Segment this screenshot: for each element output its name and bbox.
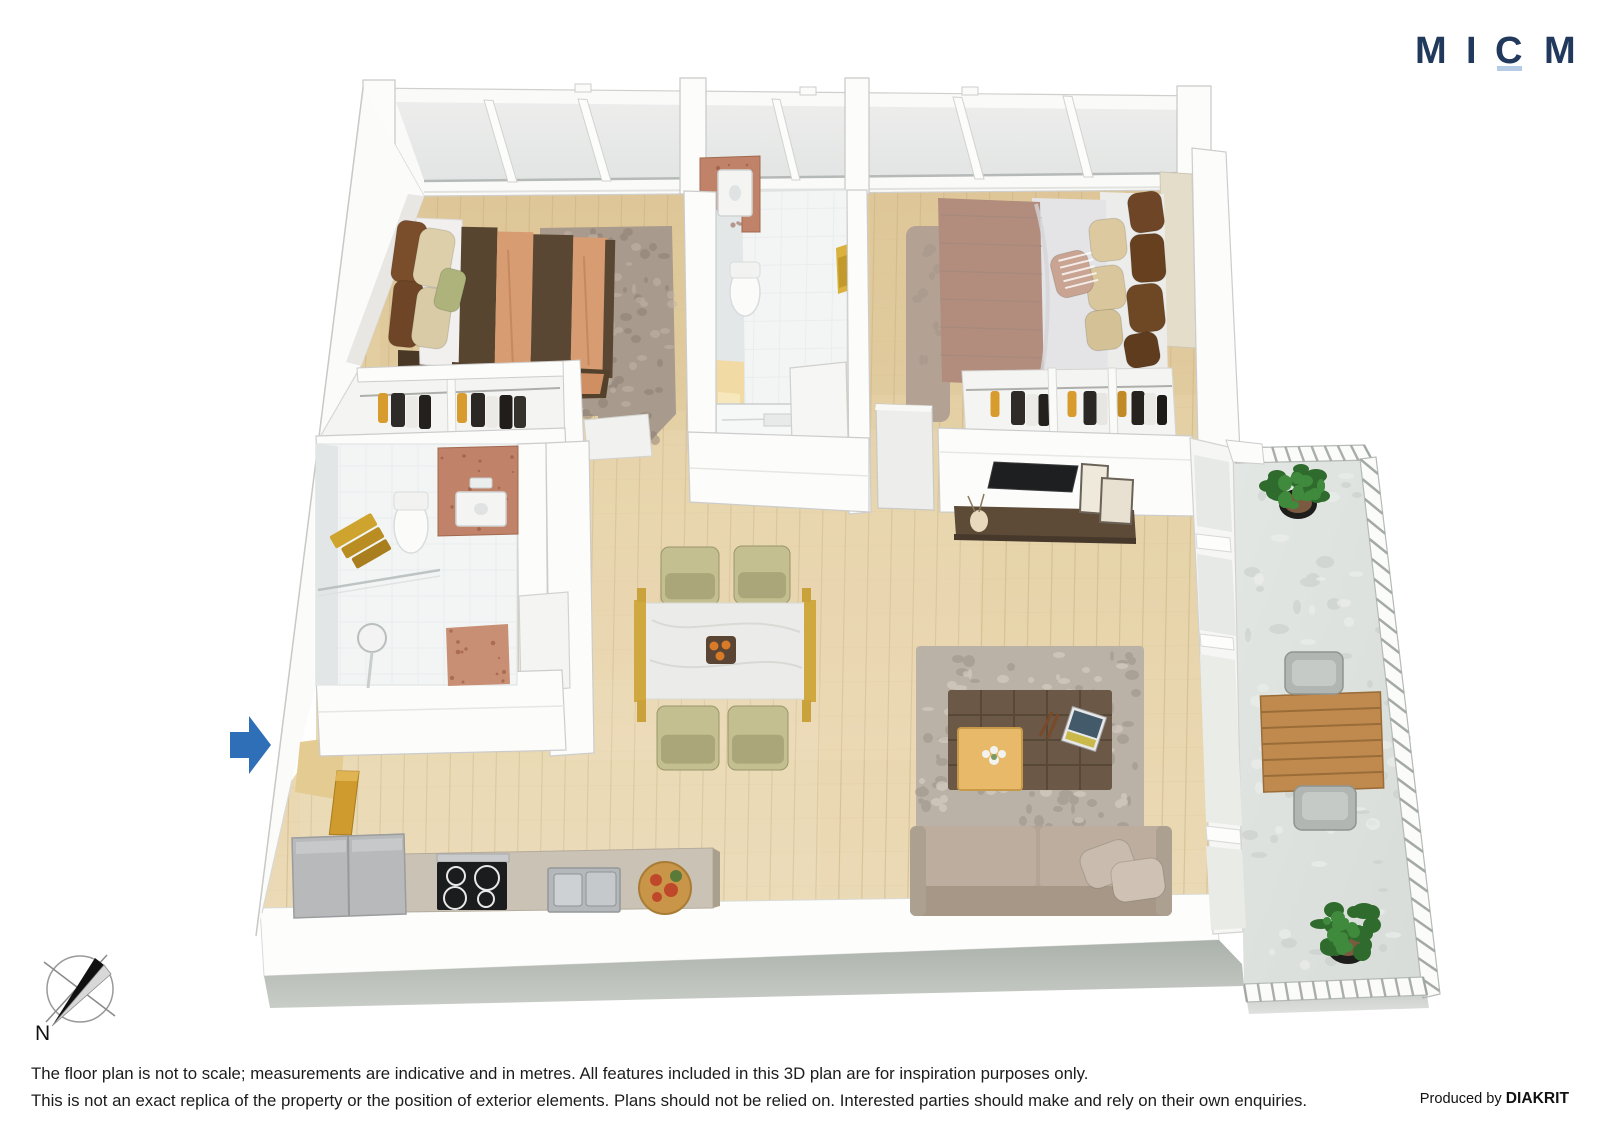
svg-text:M: M (1544, 30, 1576, 72)
svg-text:C: C (1495, 30, 1522, 72)
svg-text:N: N (35, 1022, 50, 1045)
svg-text:This is not an exact replica o: This is not an exact replica of the prop… (31, 1091, 1307, 1110)
svg-text:I: I (1466, 30, 1477, 72)
svg-text:M: M (1415, 30, 1447, 72)
svg-text:The floor plan is not to scale: The floor plan is not to scale; measurem… (31, 1064, 1088, 1083)
svg-text:Produced by DIAKRIT: Produced by DIAKRIT (1420, 1090, 1570, 1107)
